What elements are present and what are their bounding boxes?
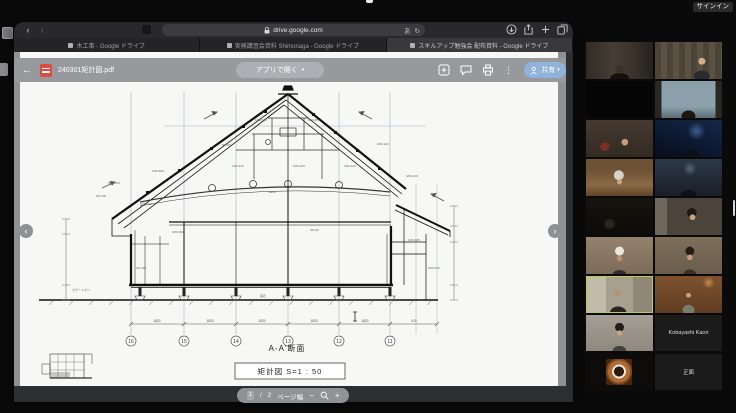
dimension-label: 1820 xyxy=(206,319,213,323)
participant-video[interactable] xyxy=(655,159,722,196)
tab-favicon xyxy=(68,43,73,48)
material-label: カラートタン xyxy=(72,287,90,292)
participant-video[interactable] xyxy=(655,237,722,274)
share-label: 共有 xyxy=(541,65,555,75)
page-separator: / xyxy=(260,392,262,399)
dimension-label: 1820 xyxy=(361,319,368,323)
participant-video[interactable] xyxy=(586,159,653,196)
previous-page-button[interactable]: ‹ xyxy=(19,224,33,238)
address-bar[interactable]: drive.google.com あ ↻ xyxy=(162,24,425,36)
share-icon[interactable] xyxy=(523,24,534,35)
dim-spec-label: 105×120 xyxy=(406,174,418,178)
participant-video[interactable] xyxy=(655,198,722,235)
tab-skillup-benkyoukai[interactable]: スキルアップ勉強会 配布資料 - Google ドライブ xyxy=(387,38,573,52)
section-title: A-A′断面 xyxy=(269,343,306,353)
participant-video[interactable] xyxy=(586,237,653,274)
tab-title: 実務講習会資料 Shimonaga - Google ドライブ xyxy=(235,41,359,50)
participant-video[interactable] xyxy=(655,81,722,118)
dim-spec-label: 105×105 xyxy=(108,181,120,185)
gallery-scrollbar[interactable] xyxy=(733,200,735,216)
participant-avatar-coffee-cup[interactable] xyxy=(586,354,653,391)
participant-video[interactable] xyxy=(655,42,722,79)
dim-spec-label: 105×120 xyxy=(293,164,305,168)
dimension-label: 1820 xyxy=(258,319,265,323)
browser-toolbar: ‹ › drive.google.com あ ↻ xyxy=(14,22,573,38)
dim-spec-label: 105×180 xyxy=(152,169,164,173)
zoom-in-button[interactable]: + xyxy=(335,391,340,401)
text-cursor xyxy=(353,312,357,321)
participant-name: 正面 xyxy=(655,368,722,376)
share-button[interactable]: 共有 ▾ xyxy=(524,62,566,78)
zoom-out-button[interactable]: − xyxy=(309,391,314,401)
dim-spec-label: 120×120 xyxy=(232,164,244,168)
file-name: 240301矩計図.pdf xyxy=(58,65,114,75)
pdf-bottom-toolbar: 1 / 2 ページ幅 − + xyxy=(237,388,349,403)
tab-mokkouji[interactable]: 木工事 - Google ドライブ xyxy=(14,38,200,52)
lock-icon xyxy=(264,27,270,34)
viewer-back-button[interactable]: ← xyxy=(22,65,32,76)
dim-spec-label: 105×120 xyxy=(377,142,389,146)
screenshare-indicator-dot xyxy=(366,0,373,3)
zoom-meeting-window: サインイン ‹ › drive.google.com あ ↻ xyxy=(0,0,736,413)
stage-manager-app-thumbnail[interactable] xyxy=(2,27,13,39)
magnifier-icon[interactable] xyxy=(320,391,329,400)
dim-spec-label: 105×300 xyxy=(172,230,184,234)
signin-button[interactable]: サインイン xyxy=(693,2,734,12)
dimension-label: 1820 xyxy=(310,319,317,323)
dim-spec-label: ⌀250 xyxy=(269,190,276,194)
tab-jitsumu-koushuu[interactable]: 実務講習会資料 Shimonaga - Google ドライブ xyxy=(200,38,386,52)
more-options-icon[interactable]: ⋮ xyxy=(504,65,513,76)
tabs-overview-icon[interactable] xyxy=(557,24,568,35)
person-add-icon xyxy=(530,66,539,75)
dim-spec-label: 105×105 xyxy=(255,118,267,122)
dim-spec-label: 90×90 xyxy=(222,143,231,147)
tab-title: スキルアップ勉強会 配布資料 - Google ドライブ xyxy=(418,41,548,50)
tab-favicon xyxy=(410,43,415,48)
material-label: 束石 xyxy=(260,293,266,298)
dim-spec-label: 30×120 xyxy=(136,266,146,270)
extension-icon[interactable] xyxy=(142,25,151,34)
browser-forward-button[interactable]: › xyxy=(36,22,48,38)
dim-spec-label: 105×210 xyxy=(140,202,152,206)
participant-video[interactable] xyxy=(655,120,722,157)
tab-bar: 木工事 - Google ドライブ 実務講習会資料 Shimonaga - Go… xyxy=(14,38,573,52)
dim-spec-label: 105×120 xyxy=(428,266,440,270)
open-with-app-button[interactable]: アプリで開く ▾ xyxy=(236,62,324,78)
lang-input-badge[interactable]: あ xyxy=(404,27,411,36)
participant-video-active-speaker[interactable] xyxy=(586,276,653,313)
downloads-icon[interactable] xyxy=(506,24,517,35)
open-with-label: アプリで開く xyxy=(256,65,298,75)
viewer-edge xyxy=(566,52,573,402)
participant-video[interactable] xyxy=(586,198,653,235)
browser-back-button[interactable]: ‹ xyxy=(22,22,34,38)
participant-name: Kobayashi Kaori xyxy=(655,330,722,336)
participant-video-off[interactable] xyxy=(586,81,653,118)
chevron-down-icon: ▾ xyxy=(557,68,560,73)
chevron-down-icon: ▾ xyxy=(302,68,305,73)
participant-video[interactable] xyxy=(586,315,653,352)
architectural-drawing: 1820 1820 1820 1820 1820 910 16 15 14 13… xyxy=(14,84,566,386)
dim-spec-label: 120×45 xyxy=(308,118,318,122)
stage-manager-app-thumbnail[interactable] xyxy=(0,63,8,76)
new-tab-icon[interactable] xyxy=(540,24,551,35)
reload-icon[interactable]: ↻ xyxy=(415,27,420,36)
participant-video[interactable] xyxy=(586,42,653,79)
key-plan xyxy=(42,354,92,378)
grid-label: 16 xyxy=(128,339,134,345)
add-to-drive-icon[interactable] xyxy=(438,64,450,76)
participant-gallery: Kobayashi Kaori 正面 xyxy=(586,42,722,390)
grid-label: 15 xyxy=(181,339,187,345)
grid-label: 14 xyxy=(233,339,239,345)
dim-spec-label: 45×90 xyxy=(310,228,319,232)
participant-video-off[interactable]: 正面 xyxy=(655,354,722,391)
page-number-input[interactable]: 1 xyxy=(247,391,254,400)
participant-video-off[interactable]: Kobayashi Kaori xyxy=(655,315,722,352)
grid-label: 11 xyxy=(387,339,392,345)
participant-video[interactable] xyxy=(586,120,653,157)
tab-title: 木工事 - Google ドライブ xyxy=(76,41,144,50)
dimension-label: 1820 xyxy=(153,319,160,323)
dim-spec-label: 120×120 xyxy=(344,164,356,168)
comment-icon[interactable] xyxy=(460,64,472,76)
page-total: 2 xyxy=(268,392,272,399)
dimension-label: 910 xyxy=(411,319,417,323)
pdf-file-icon xyxy=(40,64,52,77)
grid-label: 12 xyxy=(336,339,342,345)
tab-favicon xyxy=(227,43,232,48)
participant-video[interactable] xyxy=(655,276,722,313)
next-page-button[interactable]: › xyxy=(548,224,562,238)
dim-spec-label: 105×105 xyxy=(408,238,420,242)
url-text: drive.google.com xyxy=(273,27,323,34)
print-icon[interactable] xyxy=(482,64,494,76)
fit-width-button[interactable]: ページ幅 xyxy=(277,391,303,401)
dim-spec-label: 30×105 xyxy=(96,194,106,198)
scale-label: 矩計図 S=1 : 50 xyxy=(258,366,323,376)
